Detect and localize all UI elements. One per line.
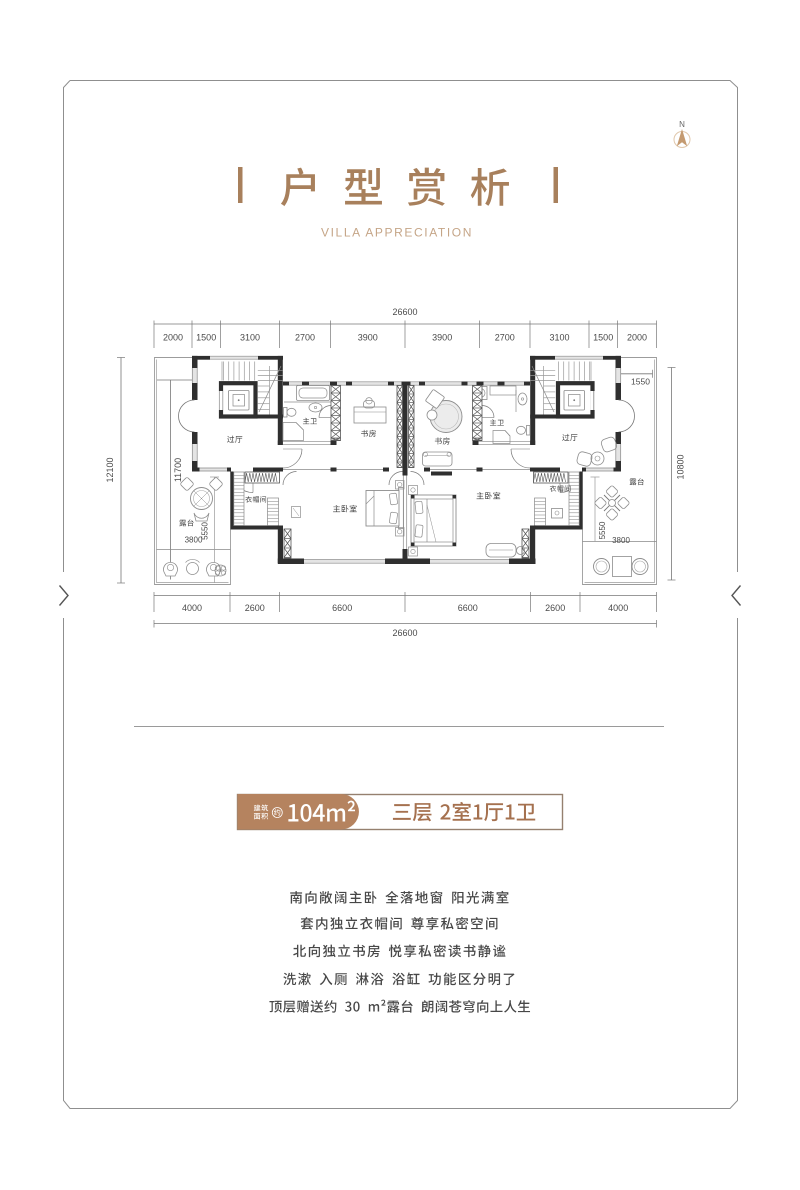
- svg-text:6600: 6600: [458, 603, 478, 613]
- svg-text:2700: 2700: [295, 333, 315, 343]
- svg-text:26600: 26600: [392, 628, 417, 638]
- svg-text:4000: 4000: [608, 603, 628, 613]
- svg-text:4000: 4000: [182, 603, 202, 613]
- svg-text:3800: 3800: [612, 536, 630, 545]
- svg-text:1500: 1500: [593, 333, 613, 343]
- svg-text:26600: 26600: [392, 307, 417, 317]
- svg-text:3900: 3900: [358, 333, 378, 343]
- svg-text:6600: 6600: [332, 603, 352, 613]
- svg-text:VILLA APPRECIATION: VILLA APPRECIATION: [321, 226, 473, 240]
- svg-text:12100: 12100: [105, 457, 115, 482]
- svg-text:3100: 3100: [240, 333, 260, 343]
- svg-text:5550: 5550: [598, 521, 607, 539]
- svg-text:3100: 3100: [549, 333, 569, 343]
- svg-text:N: N: [679, 120, 685, 129]
- svg-text:11700: 11700: [173, 458, 183, 482]
- svg-text:2600: 2600: [245, 603, 265, 613]
- svg-text:10800: 10800: [676, 454, 686, 479]
- svg-text:3800: 3800: [185, 536, 203, 545]
- svg-text:2000: 2000: [163, 333, 183, 343]
- svg-text:2700: 2700: [495, 333, 515, 343]
- svg-text:3900: 3900: [432, 333, 452, 343]
- svg-text:1500: 1500: [196, 333, 216, 343]
- svg-text:1550: 1550: [631, 377, 650, 387]
- svg-text:2600: 2600: [545, 603, 565, 613]
- svg-text:2000: 2000: [627, 333, 647, 343]
